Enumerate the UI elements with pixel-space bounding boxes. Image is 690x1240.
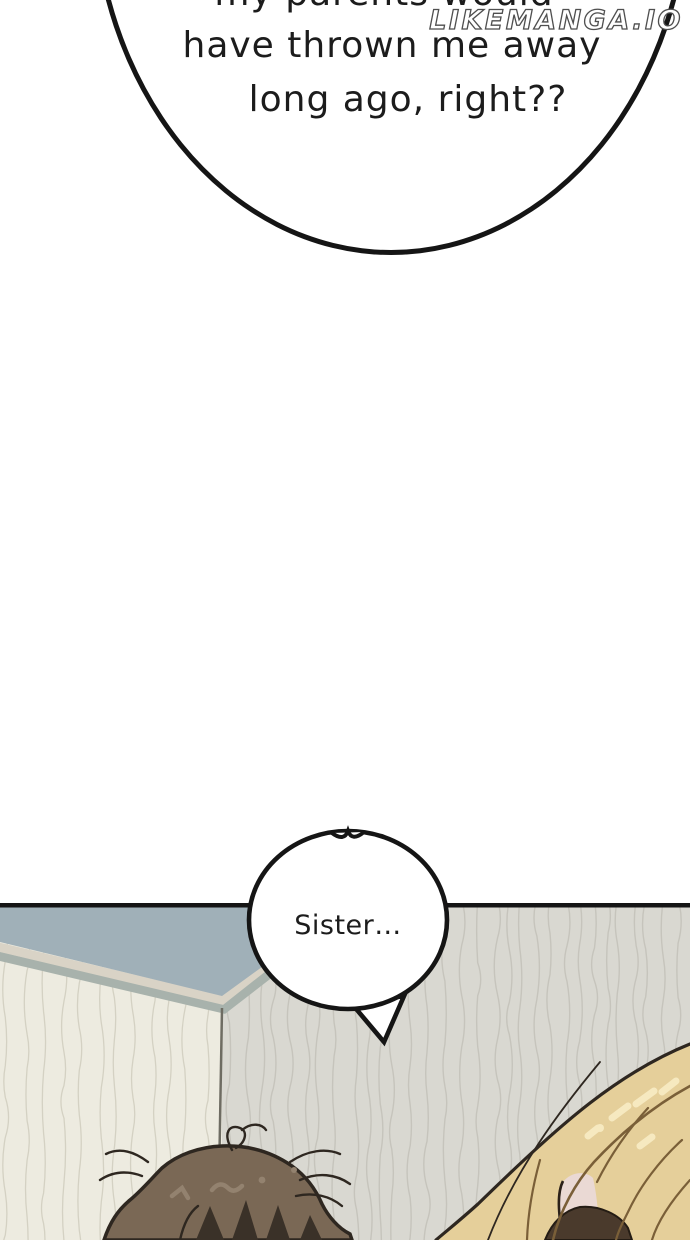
- sister-speech-text: Sister…: [258, 910, 438, 941]
- site-watermark: LIKEMANGA.IO: [429, 5, 683, 36]
